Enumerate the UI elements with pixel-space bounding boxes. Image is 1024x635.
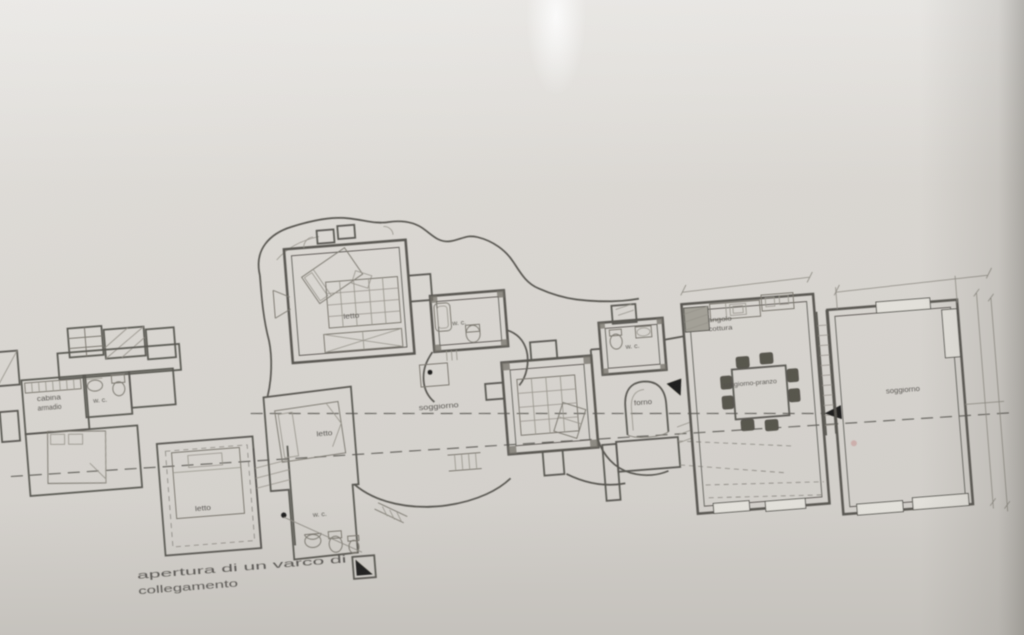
grain-overlay [0,0,1024,635]
floor-plan-photo: cabinaarmadiow. c.lettolettow. c.lettoso… [0,0,1024,635]
floor-plan-drawing: cabinaarmadiow. c.lettolettow. c.lettoso… [0,0,1024,635]
